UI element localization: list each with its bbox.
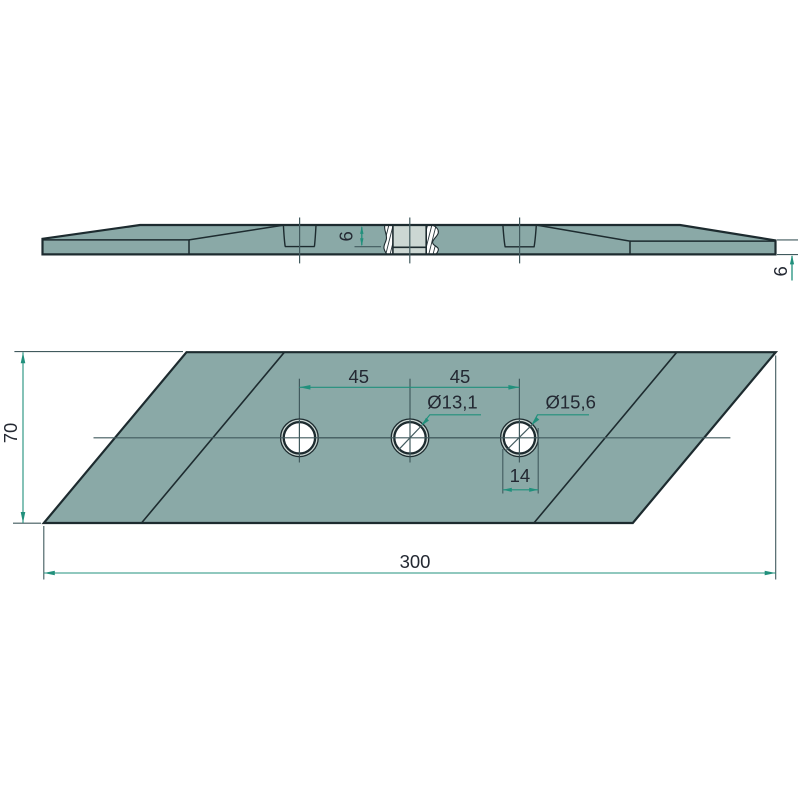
svg-text:Ø15,6: Ø15,6 [546,392,596,413]
svg-text:6: 6 [336,231,357,241]
svg-text:Ø13,1: Ø13,1 [427,392,477,413]
svg-text:45: 45 [450,366,471,387]
svg-text:300: 300 [400,551,431,572]
svg-text:14: 14 [510,465,531,486]
svg-text:45: 45 [349,366,370,387]
svg-text:70: 70 [0,423,21,444]
svg-text:6: 6 [770,266,791,276]
